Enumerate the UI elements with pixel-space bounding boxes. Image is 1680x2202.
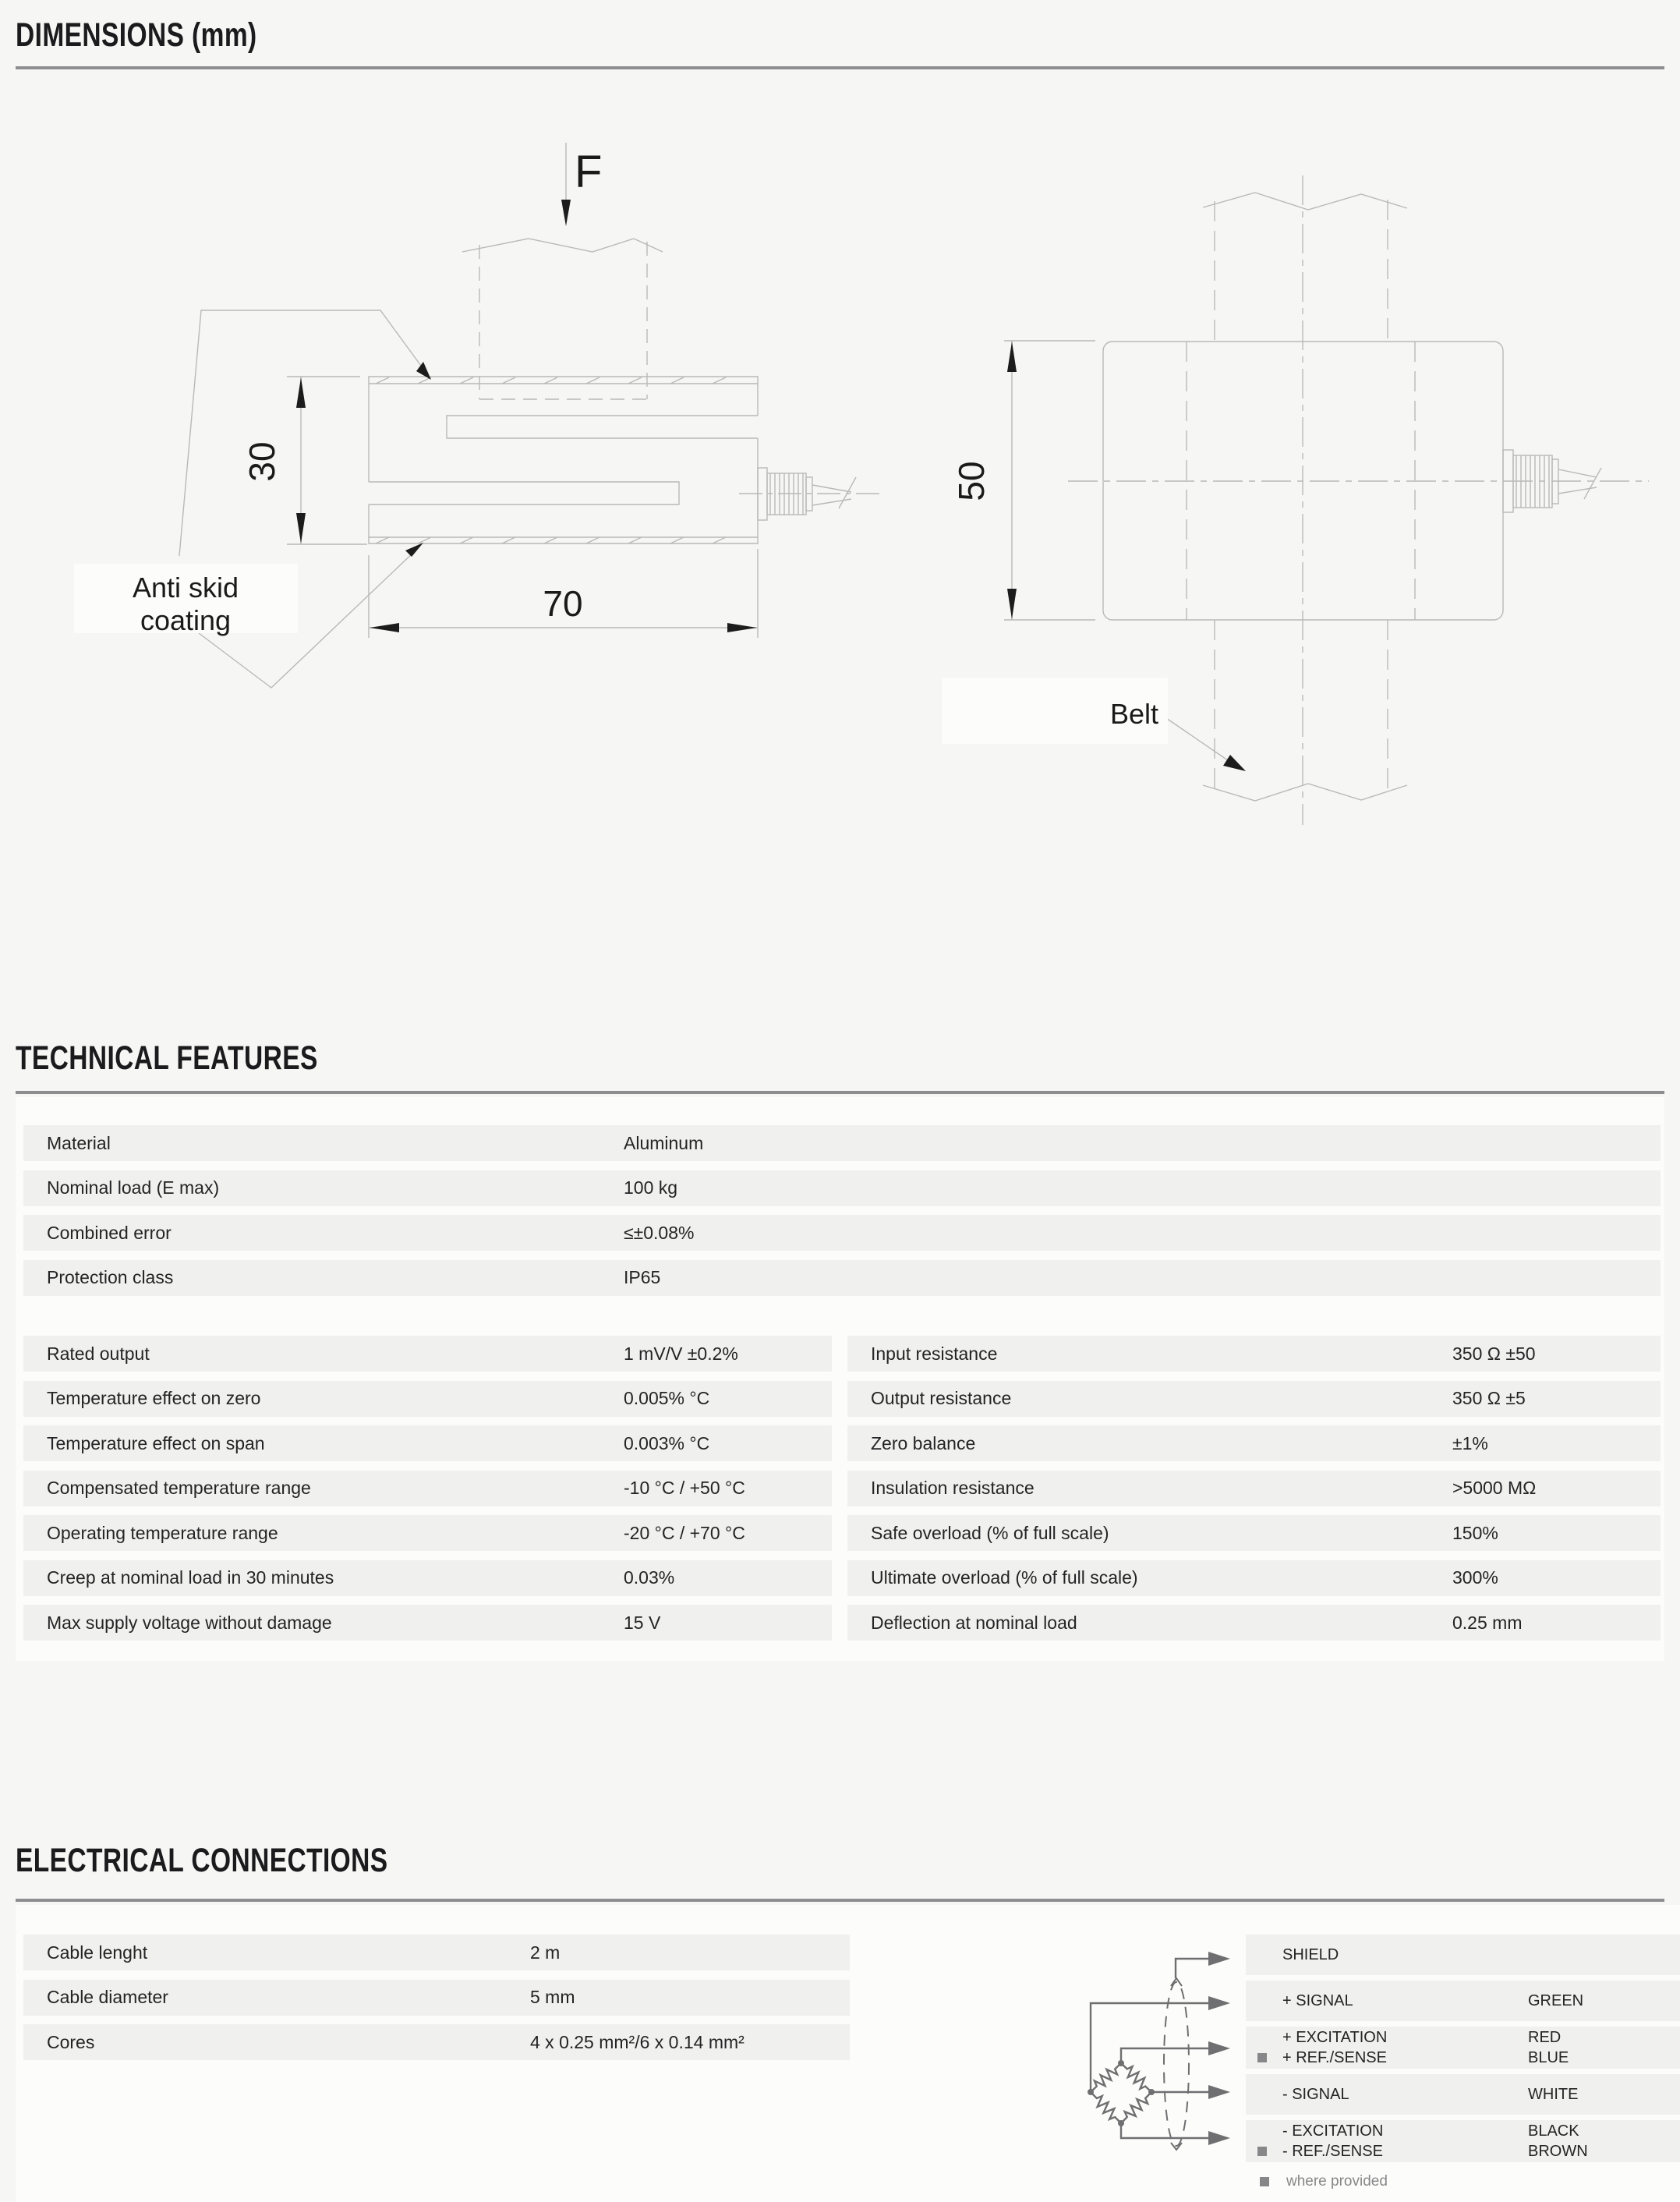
spec-label: Rated output [47,1344,150,1365]
section-rule [16,66,1664,69]
technical-table-right: Input resistance 350 Ω ±50 Output resist… [847,1336,1661,1650]
spec-label: Material [47,1133,111,1154]
cable-ellipse-icon [1164,1982,1189,2146]
table-row: Temperature effect on span 0.003% °C [23,1425,832,1461]
spec-label: Temperature effect on span [47,1433,265,1454]
spec-label: Deflection at nominal load [871,1613,1077,1634]
spec-label: Operating temperature range [47,1523,278,1544]
spec-label: Cable diameter [47,1987,168,2008]
spec-label: Combined error [47,1223,172,1244]
spec-label: Insulation resistance [871,1478,1035,1499]
table-row: Max supply voltage without damage 15 V [23,1605,832,1641]
where-provided-marker [1257,2147,1267,2156]
height-dimension-label: 30 [242,441,282,481]
table-row: Cores 4 x 0.25 mm²/6 x 0.14 mm² [23,2024,850,2060]
spec-label: Temperature effect on zero [47,1388,260,1409]
wire-label: + REF./SENSE [1282,2048,1387,2068]
spec-value: 100 kg [624,1177,677,1198]
wire-color: RED [1528,2027,1561,2048]
spec-label: Creep at nominal load in 30 minutes [47,1567,334,1588]
spec-label: Nominal load (E max) [47,1177,219,1198]
wire-label: - SIGNAL [1282,2084,1349,2105]
shield-wire [1176,1959,1210,1978]
spec-value: -10 °C / +50 °C [624,1478,745,1499]
datasheet-page: DIMENSIONS (mm) [0,0,1680,2202]
anti-skid-label-line2: coating [140,604,231,636]
spec-value: 5 mm [530,1987,575,2008]
spec-value: 0.005% °C [624,1388,709,1409]
table-row: Nominal load (E max) 100 kg [23,1170,1661,1206]
spec-value: ±1% [1452,1433,1488,1454]
table-row: Rated output 1 mV/V ±0.2% [23,1336,832,1372]
spec-label: Output resistance [871,1388,1011,1409]
spec-value: 2 m [530,1942,560,1963]
table-row: SHIELD [1246,1935,1680,1975]
spec-value: ≤±0.08% [624,1223,694,1244]
spec-value: IP65 [624,1267,660,1288]
dimension-drawings: F 30 70 Anti skid coating 50 Belt [0,74,1680,932]
section-rule [16,1899,1664,1902]
force-label: F [575,147,602,197]
table-row: - SIGNAL WHITE [1246,2074,1680,2115]
spec-value: 0.03% [624,1567,674,1588]
table-row: Compensated temperature range -10 °C / +… [23,1471,832,1506]
table-row: Protection class IP65 [23,1260,1661,1296]
anti-skid-hatch-top [376,377,726,384]
table-row: Material Aluminum [23,1125,1661,1161]
spec-value: 15 V [624,1613,660,1634]
spec-value: 1 mV/V ±0.2% [624,1344,738,1365]
table-row: Deflection at nominal load 0.25 mm [847,1605,1661,1641]
technical-table-left: Rated output 1 mV/V ±0.2% Temperature ef… [23,1336,832,1650]
spec-label: Cable lenght [47,1942,147,1963]
section-title-dimensions: DIMENSIONS (mm) [16,16,257,55]
spec-label: Zero balance [871,1433,975,1454]
spec-value: >5000 MΩ [1452,1478,1536,1499]
table-row: - EXCITATION BLACK - REF./SENSE BROWN [1246,2120,1680,2162]
spec-label: Input resistance [871,1344,997,1365]
table-row: Creep at nominal load in 30 minutes 0.03… [23,1560,832,1596]
where-provided-marker [1260,2177,1269,2186]
table-row: Output resistance 350 Ω ±5 [847,1381,1661,1417]
bridge-resistors-icon [1091,2063,1151,2123]
wire-label: + EXCITATION [1282,2027,1387,2048]
spec-value: 350 Ω ±5 [1452,1388,1526,1409]
wire-label: SHIELD [1282,1945,1339,1965]
wire-color: GREEN [1528,1991,1583,2011]
spec-label: Cores [47,2032,94,2053]
table-row: Temperature effect on zero 0.005% °C [23,1381,832,1417]
height-dimension-label: 50 [951,461,992,501]
section-rule [16,1091,1664,1094]
spec-label: Compensated temperature range [47,1478,311,1499]
section-title-electrical: ELECTRICAL CONNECTIONS [16,1842,388,1880]
table-row: Input resistance 350 Ω ±50 [847,1336,1661,1372]
section-title-technical: TECHNICAL FEATURES [16,1039,318,1078]
spec-label: Protection class [47,1267,173,1288]
table-row: Cable diameter 5 mm [23,1980,850,2016]
spec-value: 0.25 mm [1452,1613,1522,1634]
plus-excitation-wire [1121,2048,1210,2063]
wire-color: WHITE [1528,2084,1578,2105]
footnote-text: where provided [1286,2173,1388,2190]
table-row: Operating temperature range -20 °C / +70… [23,1515,832,1551]
table-row: Ultimate overload (% of full scale) 300% [847,1560,1661,1596]
wire-color: BROWN [1528,2141,1588,2161]
table-row: Combined error ≤±0.08% [23,1215,1661,1251]
anti-skid-label-line1: Anti skid [133,572,239,604]
belt-label: Belt [1110,698,1158,730]
wire-label: - REF./SENSE [1282,2141,1383,2161]
where-provided-marker [1257,2053,1267,2062]
spec-value: 350 Ω ±50 [1452,1344,1536,1365]
table-row: Cable lenght 2 m [23,1935,850,1970]
wire-label: - EXCITATION [1282,2121,1383,2141]
wire-color: BLACK [1528,2121,1579,2141]
spec-label: Safe overload (% of full scale) [871,1523,1109,1544]
spec-value: 4 x 0.25 mm²/6 x 0.14 mm² [530,2032,745,2053]
table-row: Zero balance ±1% [847,1425,1661,1461]
technical-table-top: Material Aluminum Nominal load (E max) 1… [23,1125,1661,1305]
spec-label: Max supply voltage without damage [47,1613,332,1634]
spec-value: 150% [1452,1523,1498,1544]
wire-color: BLUE [1528,2048,1569,2068]
spec-value: Aluminum [624,1133,703,1154]
minus-excitation-wire [1121,2123,1210,2138]
table-row: Insulation resistance >5000 MΩ [847,1471,1661,1506]
table-row: Safe overload (% of full scale) 150% [847,1515,1661,1551]
wire-label: + SIGNAL [1282,1991,1353,2011]
spec-value: 300% [1452,1567,1498,1588]
electrical-table: Cable lenght 2 m Cable diameter 5 mm Cor… [23,1935,850,2069]
spec-label: Ultimate overload (% of full scale) [871,1567,1138,1588]
table-row: + EXCITATION RED + REF./SENSE BLUE [1246,2027,1680,2069]
wiring-table: SHIELD + SIGNAL GREEN + EXCITATION RED +… [1246,1906,1680,2202]
width-dimension-label: 70 [543,583,582,624]
spec-value: 0.003% °C [624,1433,709,1454]
spec-value: -20 °C / +70 °C [624,1523,745,1544]
footnote: where provided [1246,2172,1388,2191]
table-row: + SIGNAL GREEN [1246,1981,1680,2021]
anti-skid-hatch-bottom [376,537,726,543]
